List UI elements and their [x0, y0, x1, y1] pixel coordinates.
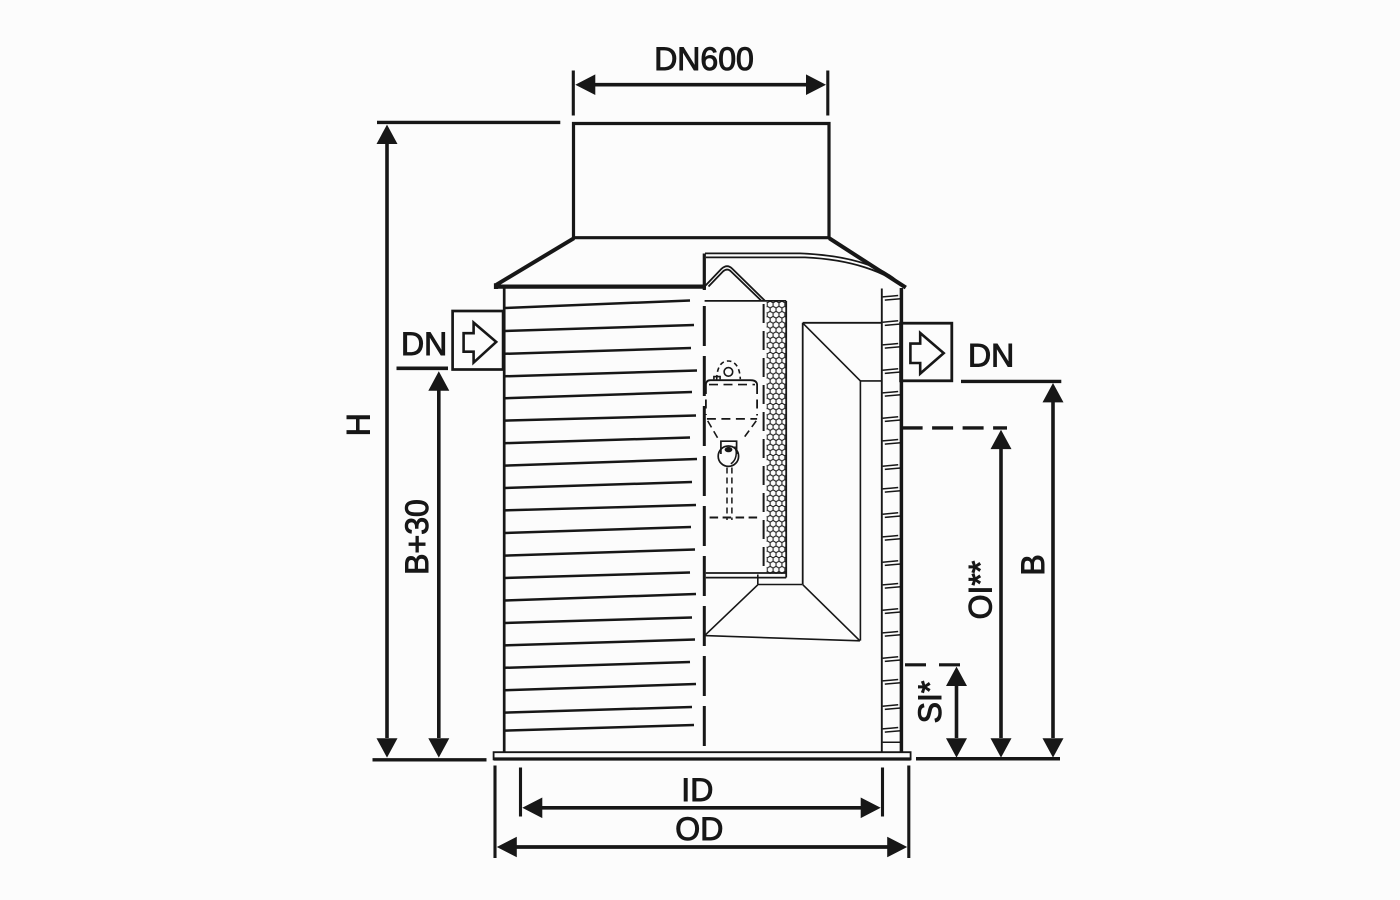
svg-text:B: B — [1015, 554, 1051, 575]
svg-text:DN: DN — [401, 326, 447, 362]
svg-text:OD: OD — [675, 811, 723, 847]
svg-text:B+30: B+30 — [399, 499, 435, 575]
svg-text:H: H — [341, 413, 377, 436]
svg-text:OI**: OI** — [963, 561, 999, 620]
svg-text:SI*: SI* — [912, 681, 948, 724]
svg-text:ID: ID — [681, 772, 713, 808]
svg-text:DN: DN — [968, 338, 1014, 374]
svg-text:DN600: DN600 — [654, 41, 754, 77]
